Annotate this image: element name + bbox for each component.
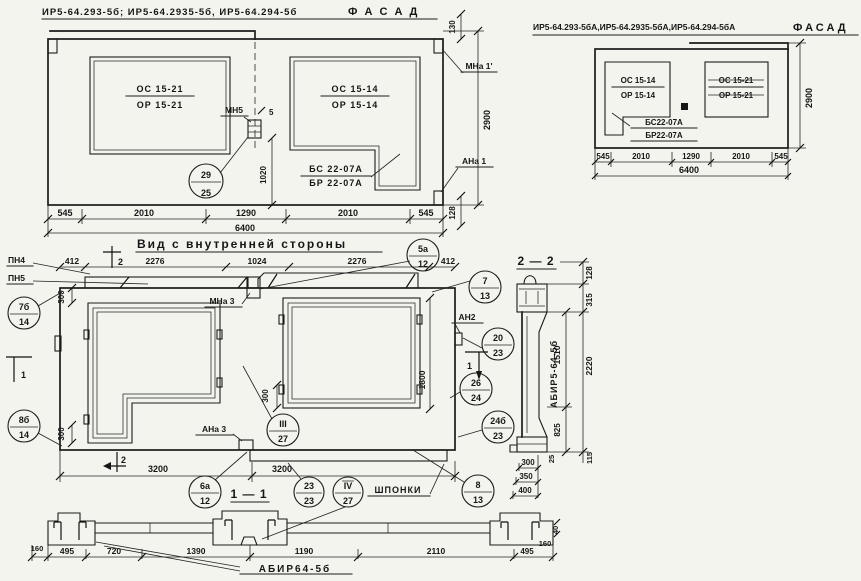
dim-128: 128	[585, 266, 594, 280]
section-2-2-drawing: 2 — 2 АБИР5-64-5б 128 315 1510 2220 8	[510, 254, 594, 499]
callout-bottom: 12	[418, 259, 428, 269]
dim-495: 495	[520, 547, 534, 556]
ana3-label: АНа 3	[202, 424, 226, 434]
dim-1800: 1800	[417, 370, 427, 389]
dim-1290: 1290	[236, 208, 256, 218]
inner-window-left	[88, 303, 220, 443]
dim-128: 128	[448, 206, 457, 220]
window-mark: ОР 15-14	[621, 91, 656, 100]
mna3-label: МНа 3	[209, 296, 234, 306]
dim-400: 400	[518, 486, 532, 495]
dim-130: 130	[448, 20, 457, 34]
dim-412: 412	[65, 256, 79, 266]
dim-2220: 2220	[584, 356, 594, 375]
dim-3200: 3200	[148, 464, 168, 474]
callout-bottom: 23	[304, 496, 314, 506]
callout-top: III	[279, 419, 287, 429]
facade-main-drawing: ИР5-64.293-5б; ИР5-64.2935-5б, ИР5-64.29…	[42, 6, 497, 237]
mn5-label: МН5	[225, 105, 243, 115]
callout-bottom: 14	[19, 430, 29, 440]
ana1-label: АНа 1	[462, 156, 486, 166]
pn5-label: ПН5	[8, 273, 25, 283]
dim-2010: 2010	[732, 152, 750, 161]
dim-6400: 6400	[235, 223, 255, 233]
callout-top: IV	[344, 481, 353, 491]
balcony-mark: БР 22-07А	[309, 178, 363, 188]
blueprint-sheet: ИР5-64.293-5б; ИР5-64.2935-5б, ИР5-64.29…	[0, 0, 861, 581]
bottom-key-strip	[250, 450, 447, 461]
dim-2900: 2900	[482, 110, 492, 130]
dim-3200: 3200	[272, 464, 292, 474]
window-mark: ОС 15-14	[621, 76, 656, 85]
dim-300: 300	[57, 427, 66, 441]
dim-1290: 1290	[682, 152, 700, 161]
inner-window-right	[283, 298, 420, 408]
dim-160: 160	[539, 539, 552, 548]
callout-bottom: 13	[480, 291, 490, 301]
dim-2110: 2110	[427, 546, 446, 556]
balcony-mark: БС22-07А	[645, 118, 683, 127]
shponki-label: ШПОНКИ	[375, 485, 422, 495]
lintel-strip-right	[258, 273, 418, 288]
callout-top: 24б	[490, 416, 506, 426]
dim-1390: 1390	[187, 546, 206, 556]
callout-bottom: 25	[201, 188, 211, 198]
blueprint-canvas: ИР5-64.293-5б; ИР5-64.2935-5б, ИР5-64.29…	[0, 0, 861, 581]
dim-350: 350	[519, 472, 533, 481]
dim-300: 300	[521, 458, 535, 467]
dim-2010: 2010	[338, 208, 358, 218]
dim-545: 545	[596, 152, 610, 161]
callout-bottom: 27	[278, 434, 288, 444]
dim-1190: 1190	[295, 546, 314, 556]
callout-bottom: 12	[200, 496, 210, 506]
callout-top: 26	[471, 378, 481, 388]
solid-square-marker	[681, 103, 688, 110]
facade-main-title-word: Ф А С А Д	[348, 6, 419, 18]
dim-6400: 6400	[679, 165, 699, 175]
dim-5: 5	[269, 108, 274, 117]
dim-545: 545	[57, 208, 72, 218]
section-2-2-title: 2 — 2	[517, 254, 554, 268]
callout-top: 23	[304, 481, 314, 491]
section-1-1-title: 1 — 1	[230, 487, 267, 501]
callout-top: 7б	[19, 302, 30, 312]
section-mark-1: 1	[21, 370, 26, 380]
window-mark: ОС 15-21	[136, 84, 183, 94]
dim-545: 545	[774, 152, 788, 161]
dim-545: 545	[418, 208, 433, 218]
callout-bottom: 13	[473, 495, 483, 505]
dim-115: 115	[585, 452, 594, 464]
inner-view-drawing: Вид с внутренней стороны 412 2276 1024 2…	[6, 237, 514, 507]
callout-bottom: 24	[471, 393, 481, 403]
window-mark: ОР 15-14	[332, 100, 379, 110]
callout-top: 8	[475, 480, 480, 490]
key-notch	[241, 537, 257, 545]
window-mark: ОС 15-21	[719, 76, 754, 85]
dim-1024: 1024	[248, 256, 267, 266]
callout-top: 7	[482, 276, 487, 286]
window-mark: ОР 15-21	[137, 100, 184, 110]
lintel-strip-left	[85, 277, 248, 288]
dim-2900: 2900	[804, 88, 814, 108]
callout-top: 29	[201, 170, 211, 180]
dim-1020: 1020	[259, 166, 268, 184]
pn4-label: ПН4	[8, 255, 25, 265]
callout-top: 5а	[418, 244, 429, 254]
callout-top: 6а	[200, 481, 211, 491]
section-mark-2: 2	[118, 257, 123, 267]
dim-2276: 2276	[146, 256, 165, 266]
section-mark-2: 2	[121, 455, 126, 465]
callout-bottom: 14	[19, 317, 29, 327]
dim-412: 412	[441, 256, 455, 266]
callout-bottom: 23	[493, 348, 503, 358]
dim-2276: 2276	[348, 256, 367, 266]
dim-1510: 1510	[552, 345, 562, 364]
inner-view-title: Вид с внутренней стороны	[137, 237, 347, 251]
an2-label: АН2	[458, 312, 475, 322]
dim-40: 40	[551, 526, 560, 534]
dim-2010: 2010	[134, 208, 154, 218]
section-1-1-drawing: 1 — 1 6а 12 23 23 IV 27 ШПОНКИ	[28, 452, 560, 575]
callout-top: 8б	[19, 415, 30, 425]
callout-bottom: 23	[493, 431, 503, 441]
dim-160: 160	[31, 544, 44, 553]
balcony-mark: БР22-07А	[645, 131, 683, 140]
facade-alt-title-word: ФАСАД	[793, 22, 849, 34]
dim-315: 315	[585, 293, 594, 307]
rib-block-left	[48, 513, 95, 545]
window-mark: ОР 15-21	[719, 91, 754, 100]
dim-25: 25	[547, 455, 556, 463]
callout-bottom: 27	[343, 496, 353, 506]
facade-alt-drawing: ИР5-64.293-5бА,ИР5-64.2935-5бА,ИР5-64.29…	[533, 22, 858, 180]
rib-block-middle	[213, 511, 287, 545]
section-mark-1: 1	[467, 361, 472, 371]
dim-2010: 2010	[632, 152, 650, 161]
facade-alt-window-right	[705, 62, 768, 117]
window-mark: ОС 15-14	[331, 84, 378, 94]
dim-495: 495	[60, 546, 74, 556]
balcony-mark: БС 22-07А	[309, 164, 363, 174]
section-1-1-panel-mark: АБИР64-5б	[259, 563, 331, 575]
facade-main-title: ИР5-64.293-5б; ИР5-64.2935-5б, ИР5-64.29…	[42, 7, 297, 18]
facade-alt-title: ИР5-64.293-5бА,ИР5-64.2935-5бА,ИР5-64.29…	[533, 22, 735, 32]
callout-top: 20	[493, 333, 503, 343]
dim-825: 825	[553, 423, 562, 437]
mna1-label: МНа 1'	[465, 61, 492, 71]
